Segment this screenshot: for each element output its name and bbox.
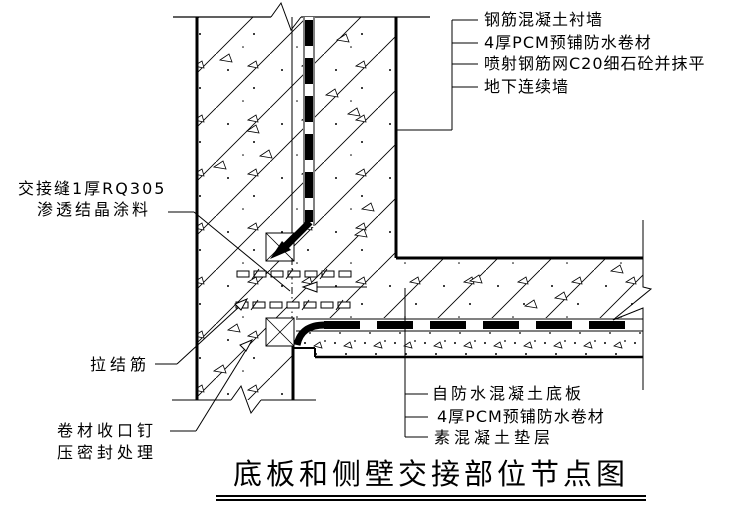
callout-waterproof-slab: 自防水混凝土底板 [432,385,584,403]
callout-pcm-membrane-wall: 4厚PCM预铺防水卷材 [484,34,652,52]
vertical-waterproof-membrane [303,17,315,227]
callout-tie-bar: 拉结筋 [90,356,150,374]
callout-lining-wall: 钢筋混凝土衬墙 [484,11,603,29]
callout-seam-coating-line1: 交接缝1厚RQ305 [18,180,166,198]
callout-seam-coating-line2: 渗透结晶涂料 [37,201,151,219]
callout-membrane-end-line1: 卷材收口钉 [57,422,157,440]
callout-diaphragm-wall: 地下连续墙 [484,78,569,96]
callout-pcm-membrane-slab: 4厚PCM预铺防水卷材 [437,408,605,426]
slab-waterproof-membrane [296,319,643,331]
callout-plain-concrete-cushion: 素混凝土垫层 [434,429,554,447]
callout-shotcrete-layer: 喷射钢筋网C20细石砼并抹平 [484,55,706,73]
detail-drawing-page: 钢筋混凝土衬墙 4厚PCM预铺防水卷材 喷射钢筋网C20细石砼并抹平 地下连续墙… [0,0,752,512]
callout-membrane-end-line2: 压密封处理 [57,444,157,462]
drawing-title: 底板和侧壁交接部位节点图 [216,456,646,501]
